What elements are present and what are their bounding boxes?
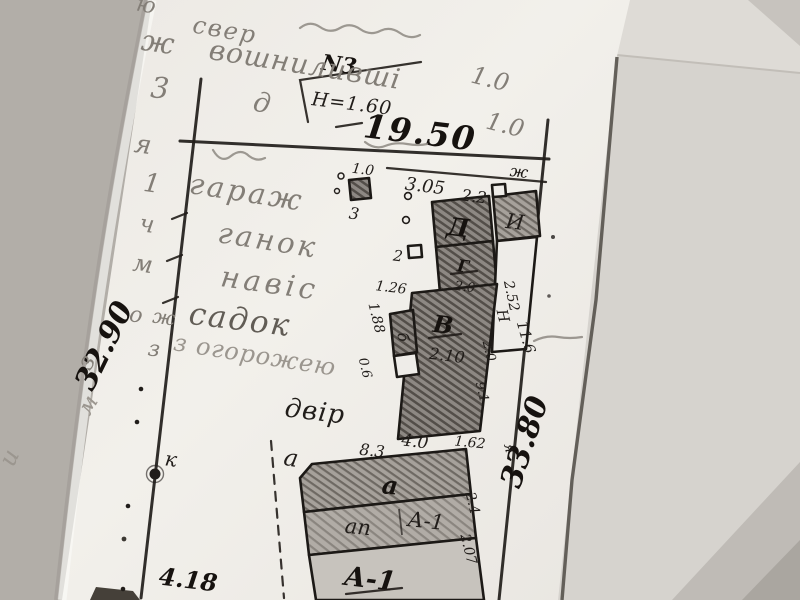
- margin-letter-3: 3: [149, 70, 170, 105]
- margin-letter-m: м: [131, 249, 155, 279]
- small-square-2: [408, 245, 422, 258]
- building-D-label: Д: [444, 212, 471, 244]
- pencil-zh-mid: ж: [151, 304, 177, 331]
- dim-8-3: 8.3: [358, 440, 385, 462]
- fence-dot: [121, 587, 126, 592]
- fence-dot-right: [547, 294, 551, 298]
- dim-4-0: 4.0: [399, 430, 429, 453]
- building-b-annex: [394, 353, 419, 377]
- fence-dot-right: [551, 235, 555, 239]
- plan-sketch-canvas: H=1.60 N3 19.50 1.0 3.05 2.2 ж Д И Г 2.0…: [0, 0, 800, 600]
- building-I-label: И: [503, 209, 526, 235]
- photo-speck: [122, 537, 127, 542]
- building-A1-strip-label: А-1: [405, 507, 446, 535]
- fence-dot: [126, 504, 131, 509]
- small-square-22: [492, 184, 506, 197]
- building-a-label: а: [380, 470, 399, 501]
- boundary-mark-zh: ж: [509, 161, 530, 182]
- shed-3-square: [349, 178, 371, 200]
- marker-2: 2: [391, 246, 404, 265]
- dim-2-2: 2.2: [459, 185, 488, 207]
- building-G-dim: 2.0: [453, 279, 476, 297]
- dim-1-62: 1.62: [454, 433, 487, 452]
- margin-letter-zh: ж: [139, 23, 176, 61]
- well-knot-mark: [150, 469, 161, 480]
- building-ap-label: ап: [344, 514, 372, 541]
- fence-dot: [135, 420, 140, 425]
- photo-of-plan-sketch: H=1.60 N3 19.50 1.0 3.05 2.2 ж Д И Г 2.0…: [0, 0, 800, 600]
- dim-1-0: 1.0: [351, 161, 375, 180]
- fence-dot: [139, 387, 144, 392]
